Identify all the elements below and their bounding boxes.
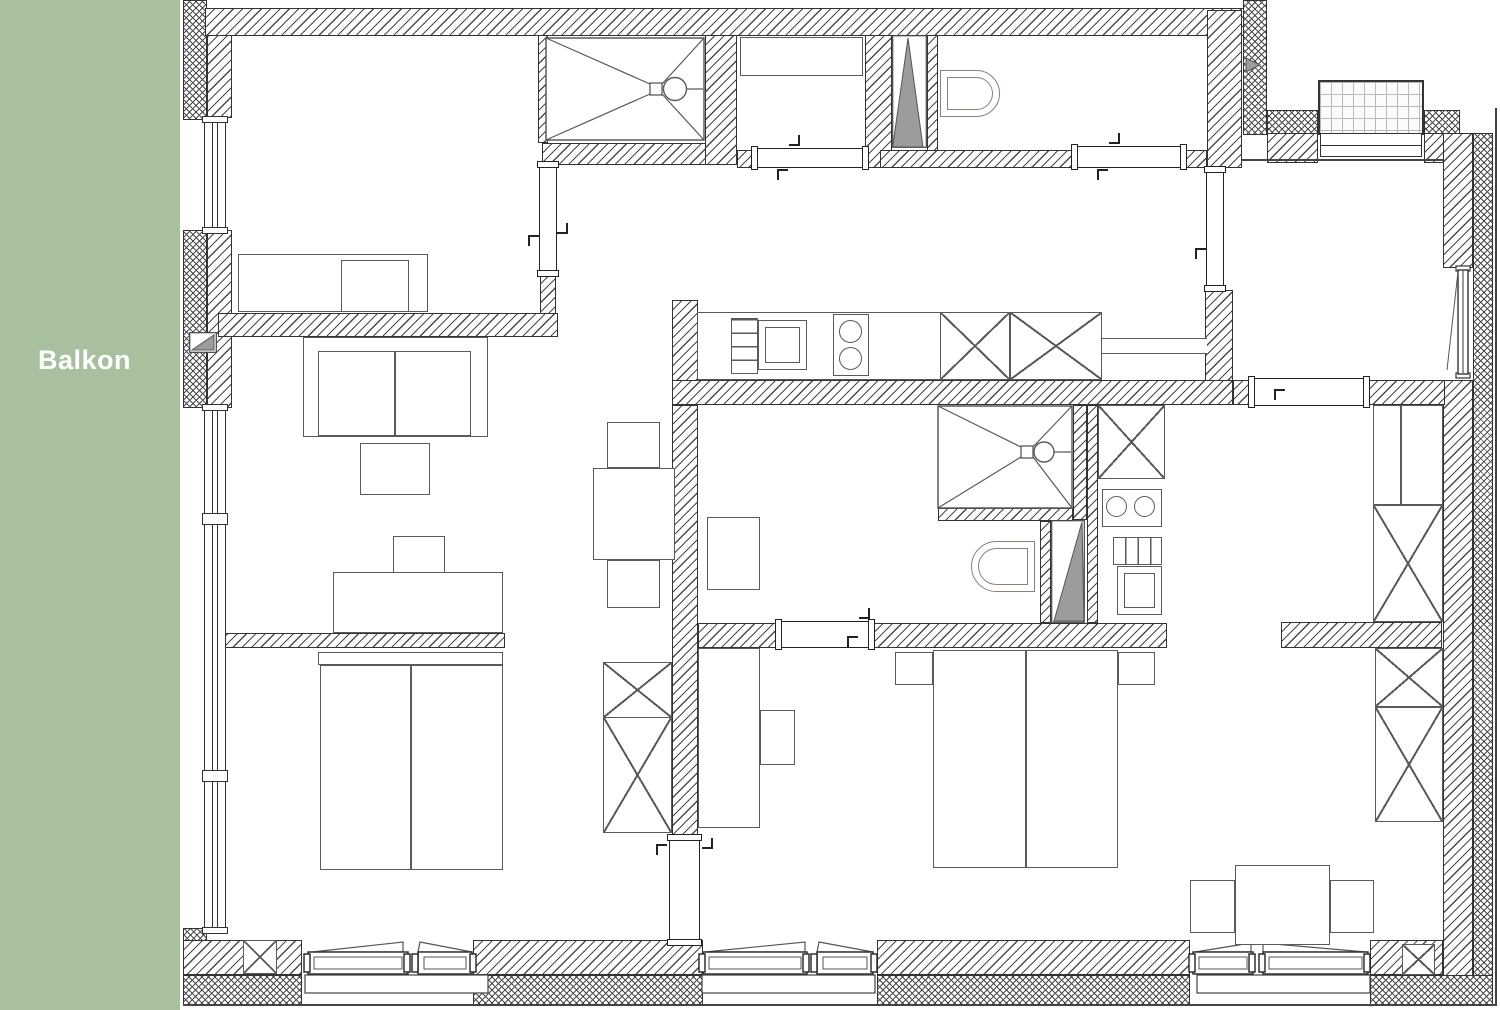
chair-desk-living	[393, 536, 445, 574]
room-top-edge-line	[1233, 159, 1460, 161]
sliding-door-laundry	[753, 148, 867, 168]
exterior-wall-left-insulation-mid	[183, 230, 207, 408]
wall-pier-cross-left	[243, 940, 277, 974]
bed-left-headboard	[318, 652, 503, 665]
window-panel-glass	[424, 957, 466, 969]
window-panel-glass	[1269, 957, 1362, 969]
window-panel-glass	[314, 957, 402, 969]
balcony-area	[0, 0, 180, 1010]
window-coupler	[202, 513, 228, 525]
desk-living	[333, 572, 503, 633]
window-sill	[702, 975, 875, 993]
nightstand-left	[895, 652, 933, 685]
window-panel-glass	[709, 957, 801, 969]
sliding-door-room4	[1206, 168, 1224, 290]
nightstand-right	[1118, 652, 1155, 685]
shaft-symbol-top	[892, 35, 927, 148]
toilet-bathroom	[971, 541, 1035, 592]
single-bed-side-table	[760, 710, 795, 765]
chair-room1	[341, 260, 409, 312]
cooktop-burner	[839, 320, 862, 343]
sliding-door-room4-bottom	[1250, 378, 1368, 406]
exterior-wall-right-lower	[1443, 380, 1473, 1005]
dining-table-right	[1235, 865, 1330, 945]
dining-chair-top	[607, 422, 660, 468]
bottom-window-middle	[698, 941, 879, 994]
slide-direction-triangle	[817, 942, 873, 952]
kitchenette-tall-unit	[1098, 405, 1165, 479]
wall-stub-below-door1	[540, 274, 556, 314]
exterior-wall-left-insulation-top	[183, 0, 207, 120]
boundary-line-right	[1495, 108, 1497, 1006]
dining-chair-bottom	[607, 560, 660, 608]
cooktop-burner	[1106, 496, 1127, 517]
shower-head	[1034, 442, 1054, 462]
sliding-door-wc	[1073, 146, 1185, 168]
wall-laundry-right	[865, 35, 892, 168]
bottom-insulation-seg2	[473, 975, 703, 1005]
desk-right-room	[1373, 405, 1443, 505]
shower-drain	[1021, 446, 1033, 458]
kitchenette-sink-inner	[1124, 573, 1155, 608]
cooktop-burner	[839, 347, 862, 370]
wall-pier-cross-right	[1402, 944, 1435, 975]
window-sill	[305, 975, 488, 993]
wardrobe-right-lower	[1375, 707, 1443, 822]
kitchen-sink-basin-inner	[765, 327, 800, 363]
wall-room1-bottom	[218, 313, 558, 337]
shaft-symbol-bath	[1051, 520, 1085, 623]
slide-direction-triangle	[418, 942, 472, 952]
slide-direction-triangle	[312, 942, 403, 952]
wall-living-bottom	[218, 633, 505, 648]
kitchen-tall-unit-wide	[1010, 312, 1102, 380]
desk-right-divider	[1400, 405, 1402, 505]
balcony-window-lower	[204, 406, 226, 932]
slide-direction-triangle	[705, 942, 805, 952]
coffee-table	[360, 443, 430, 495]
wall-kitchenette-back	[1087, 405, 1098, 623]
laundry-closet	[740, 37, 863, 76]
bed-left-divider	[410, 665, 412, 870]
sliding-door-bathroom	[777, 621, 873, 648]
wall-wc-right	[1207, 10, 1242, 168]
washbasin-bathroom	[707, 517, 760, 590]
toilet-top-wc	[940, 70, 1000, 117]
shower-head	[664, 78, 687, 101]
exterior-wall-topright-band-left	[1267, 110, 1318, 135]
cooktop-burner	[1134, 496, 1155, 517]
dining-chair-right	[1330, 880, 1374, 933]
wall-bath-bottom-right	[873, 623, 1167, 648]
bottom-window-left	[300, 941, 490, 994]
shaft-symbol-balcony-wall	[189, 332, 217, 353]
exterior-wall-topright-band-right	[1424, 110, 1460, 135]
wall-room5-stub	[1281, 622, 1442, 648]
wall-kitchen-bottom	[672, 380, 1233, 405]
shower-top	[545, 37, 705, 141]
window-panel-glass	[823, 957, 867, 969]
sliding-glass-door-bedroom	[669, 836, 700, 944]
exterior-wall-right-insulation	[1473, 133, 1493, 1005]
shaft-symbol-topright	[1244, 56, 1262, 74]
sofa-seat-divider	[394, 351, 396, 436]
wall-shaft1-right	[927, 35, 938, 168]
shower-bathroom	[937, 405, 1073, 509]
bottom-window-right	[1188, 941, 1372, 994]
shower-drain	[650, 83, 662, 95]
floor-plan: Balkon	[0, 0, 1500, 1010]
balcony-window-upper	[204, 118, 226, 232]
glass-block-window	[1318, 80, 1424, 135]
kitchen-tall-unit	[940, 312, 1010, 380]
exterior-wall-bottom-seg3	[877, 940, 1190, 975]
window-sill	[1197, 975, 1370, 993]
wardrobe-living-lower	[603, 717, 672, 833]
single-bed	[698, 648, 760, 828]
boundary-line-bottom	[183, 1004, 1497, 1006]
wall-toilet2-right	[1040, 521, 1051, 623]
wall-spine	[672, 405, 698, 838]
casement-window-right	[1444, 262, 1474, 382]
wardrobe-living-upper	[603, 662, 672, 718]
wardrobe-right-upper	[1373, 505, 1443, 622]
bottom-insulation-seg1	[183, 975, 302, 1005]
sliding-door-room1	[539, 163, 557, 275]
window-coupler	[202, 770, 228, 782]
wall-shower2-right	[1073, 405, 1087, 520]
wall-shower1-bottom	[542, 143, 713, 165]
bottom-insulation-seg3	[877, 975, 1190, 1005]
kitchen-shelf	[1102, 338, 1207, 354]
window-below-glass-block	[1320, 133, 1422, 157]
exterior-wall-right-upper	[1443, 133, 1473, 268]
shaft-triangle	[1246, 58, 1260, 72]
wall-wc-bottom	[880, 150, 1073, 168]
kitchen-sink-drainer	[731, 318, 758, 374]
kitchenette-faucet	[1113, 537, 1162, 565]
wall-bath-bottom-left	[698, 623, 777, 648]
bottom-insulation-seg4	[1370, 975, 1493, 1005]
dining-chair-left	[1190, 880, 1235, 933]
wardrobe-right-mid	[1375, 648, 1443, 707]
wall-shower1-right	[705, 35, 737, 165]
balcony-label: Balkon	[38, 345, 131, 376]
dining-table-left	[593, 468, 675, 560]
exterior-wall-top	[205, 8, 1245, 36]
window-panel-glass	[1199, 957, 1247, 969]
bed-right-divider	[1025, 650, 1027, 868]
wall-below-door2	[1205, 290, 1233, 382]
bed-left	[320, 665, 503, 870]
wall-room4-bottom-right	[1368, 380, 1445, 405]
